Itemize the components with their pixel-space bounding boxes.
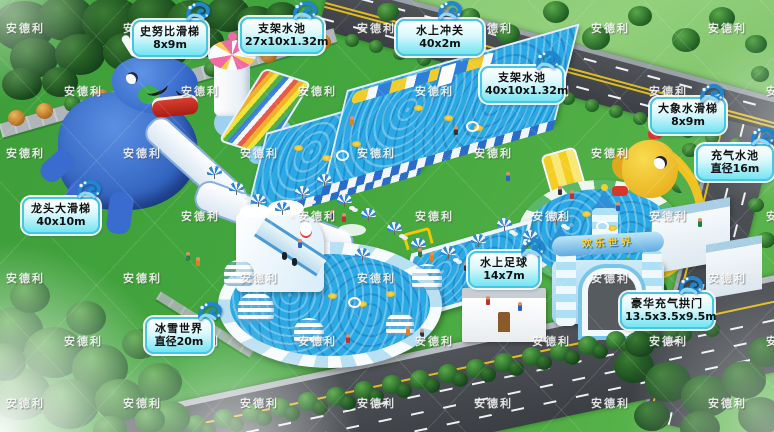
label-size: 直径16m	[701, 162, 769, 175]
label-title: 充气水池	[701, 149, 769, 162]
label-water-obstacle: 水上冲关 40x2m	[396, 19, 484, 56]
label-arch: 豪华充气拱门 13.5x3.5x9.5m	[620, 292, 714, 329]
wave-splash-icon	[536, 51, 560, 70]
wave-splash-icon	[700, 84, 724, 103]
wave-splash-icon	[679, 276, 703, 295]
labels-layer: 史努比滑梯 8x9m 支架水池 27x10x1.32m 水上冲关 40x2m 支…	[0, 0, 774, 432]
label-frame-pool-27: 支架水池 27x10x1.32m	[240, 17, 324, 54]
label-title: 冰雪世界	[150, 322, 208, 335]
wave-splash-icon	[198, 302, 222, 321]
label-size: 8x9m	[137, 38, 203, 51]
label-title: 大象水滑梯	[655, 102, 721, 115]
label-title: 支架水池	[485, 71, 559, 84]
label-size: 40x10x1.32m	[485, 84, 559, 97]
label-title: 支架水池	[245, 22, 319, 35]
label-size: 14x7m	[473, 269, 535, 282]
label-snoopy-slide: 史努比滑梯 8x9m	[132, 20, 208, 57]
label-size: 40x10m	[27, 215, 95, 228]
label-size: 直径20m	[150, 335, 208, 348]
wave-splash-icon	[438, 1, 462, 20]
label-size: 13.5x3.5x9.5m	[625, 310, 709, 323]
label-dragon-slide: 龙头大滑梯 40x10m	[22, 197, 100, 234]
label-ice-world: 冰雪世界 直径20m	[145, 317, 213, 354]
label-title: 豪华充气拱门	[625, 297, 709, 310]
label-size: 40x2m	[401, 37, 479, 50]
wave-splash-icon	[751, 127, 774, 146]
wave-splash-icon	[521, 238, 545, 257]
label-title: 水上冲关	[401, 24, 479, 37]
wave-splash-icon	[77, 180, 101, 199]
water-park-plan: 欢乐世界 安德利安德利安德利安德利安德利安德利安德利安德利安德利安德利安德利安德…	[0, 0, 774, 432]
wave-splash-icon	[293, 1, 317, 20]
label-size: 27x10x1.32m	[245, 35, 319, 48]
label-size: 8x9m	[655, 115, 721, 128]
label-title: 史努比滑梯	[137, 25, 203, 38]
wave-splash-icon	[186, 2, 210, 21]
label-inflatable-pool: 充气水池 直径16m	[696, 144, 774, 181]
label-frame-pool-40: 支架水池 40x10x1.32m	[480, 66, 564, 103]
label-title: 龙头大滑梯	[27, 202, 95, 215]
label-title: 水上足球	[473, 256, 535, 269]
